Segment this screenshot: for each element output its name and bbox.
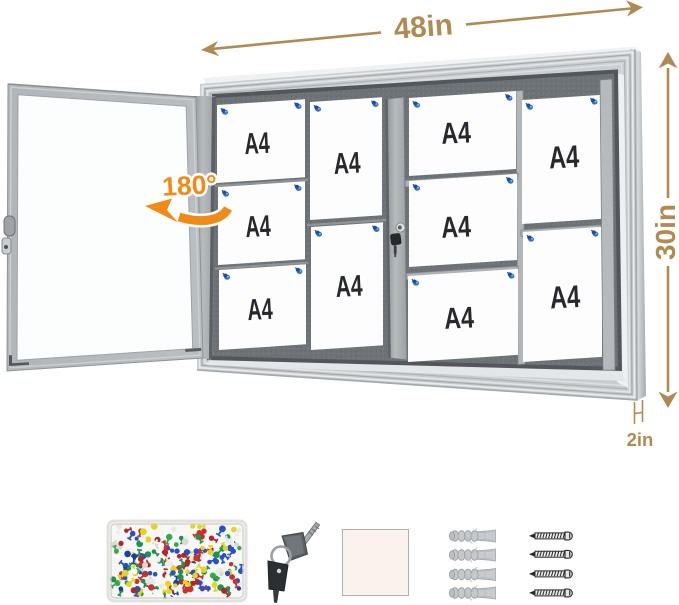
svg-text:A4: A4 [246,293,273,327]
svg-text:A4: A4 [335,270,364,304]
svg-text:30in: 30in [650,204,679,260]
svg-text:A4: A4 [443,300,474,335]
svg-text:A4: A4 [440,209,471,244]
svg-text:A4: A4 [244,210,271,244]
svg-text:A4: A4 [548,139,580,176]
svg-text:A4: A4 [243,127,270,161]
svg-text:A4: A4 [440,115,471,150]
svg-text:A4: A4 [549,279,581,316]
svg-text:48in: 48in [393,8,454,46]
svg-text:180°: 180° [161,169,217,202]
svg-text:2in: 2in [627,429,654,450]
svg-text:A4: A4 [333,147,362,181]
